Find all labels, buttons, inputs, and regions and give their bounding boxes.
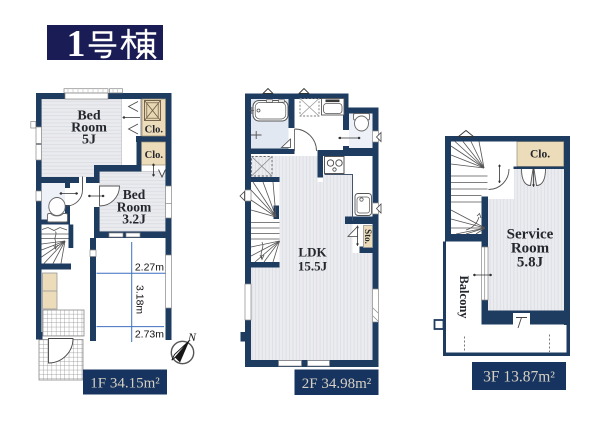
svg-text:1F 34.15m²: 1F 34.15m²	[90, 376, 160, 392]
svg-text:1: 1	[67, 23, 86, 65]
svg-text:3F 13.87m²: 3F 13.87m²	[483, 369, 555, 386]
svg-text:2.27m: 2.27m	[135, 262, 164, 274]
svg-text:2F 34.98m²: 2F 34.98m²	[302, 376, 372, 392]
svg-text:5.8J: 5.8J	[517, 255, 544, 271]
svg-text:15.5J: 15.5J	[298, 259, 328, 274]
svg-text:LDK: LDK	[298, 245, 327, 260]
svg-text:2.73m: 2.73m	[135, 329, 164, 341]
svg-text:Balcony: Balcony	[457, 275, 471, 319]
svg-text:3.2J: 3.2J	[122, 212, 146, 227]
svg-text:N: N	[187, 330, 197, 344]
svg-text:Sto.: Sto.	[363, 229, 373, 244]
svg-text:3.18m: 3.18m	[134, 285, 146, 314]
svg-text:Clo.: Clo.	[530, 149, 550, 161]
svg-text:Clo.: Clo.	[145, 125, 164, 136]
svg-text:Clo.: Clo.	[145, 150, 164, 161]
svg-text:5J: 5J	[82, 133, 96, 148]
